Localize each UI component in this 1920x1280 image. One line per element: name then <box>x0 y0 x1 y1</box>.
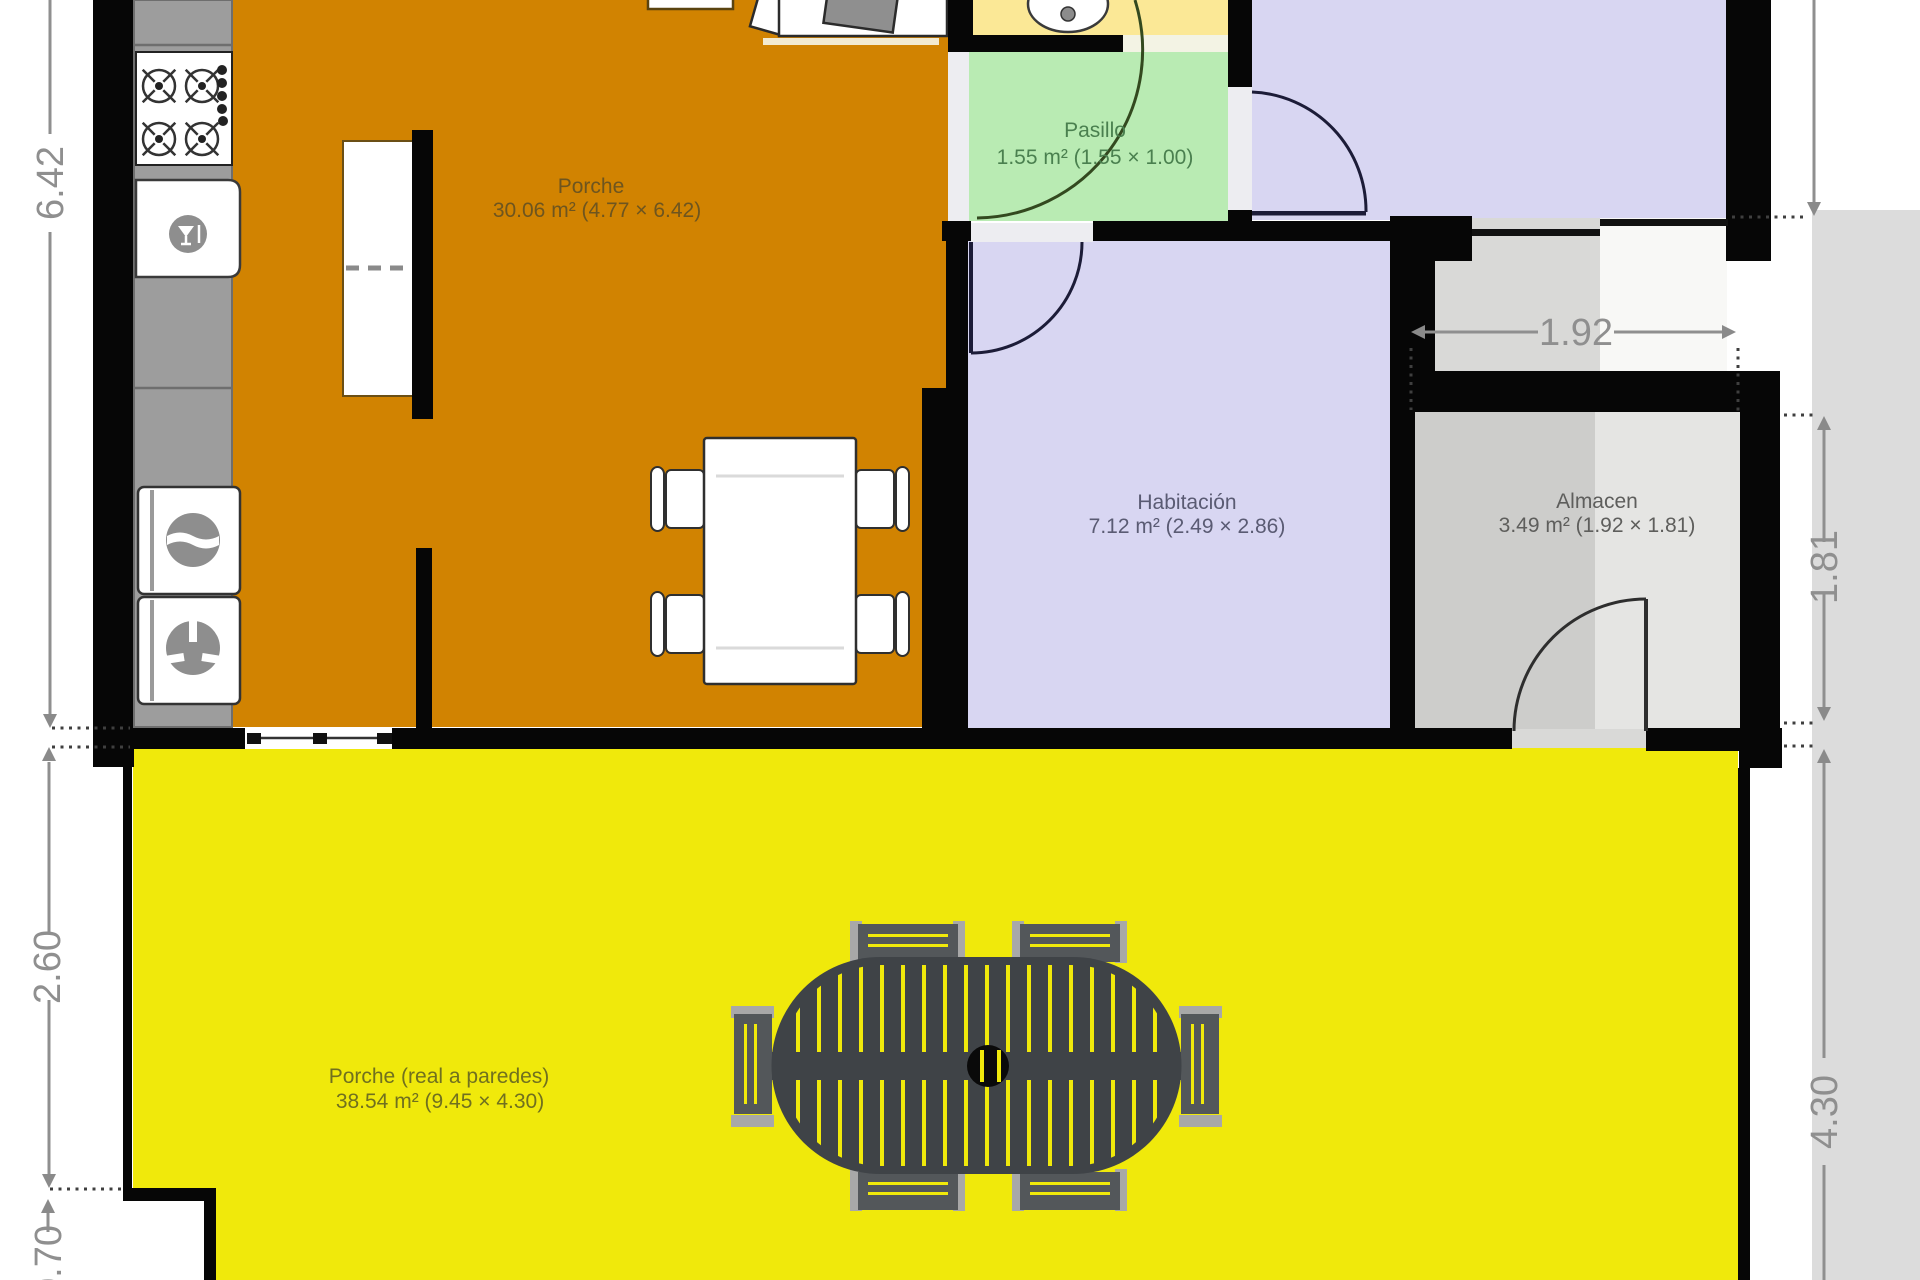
svg-text:2.60: 2.60 <box>27 930 69 1004</box>
svg-text:4.30: 4.30 <box>1804 1075 1846 1149</box>
svg-text:7.12 m² (2.49 × 2.86): 7.12 m² (2.49 × 2.86) <box>1089 515 1286 538</box>
svg-text:1.92: 1.92 <box>1539 312 1613 354</box>
svg-text:38.54 m² (9.45 × 4.30): 38.54 m² (9.45 × 4.30) <box>336 1090 544 1113</box>
svg-text:6.42: 6.42 <box>30 146 72 220</box>
svg-text:Porche (real a paredes): Porche (real a paredes) <box>329 1065 550 1088</box>
svg-text:Habitación: Habitación <box>1137 491 1236 514</box>
svg-text:30.06 m² (4.77 × 6.42): 30.06 m² (4.77 × 6.42) <box>493 199 701 222</box>
svg-text:0.70: 0.70 <box>28 1225 70 1280</box>
svg-text:Pasillo: Pasillo <box>1064 119 1126 142</box>
svg-text:3.49 m² (1.92 × 1.81): 3.49 m² (1.92 × 1.81) <box>1499 514 1696 537</box>
svg-text:Porche: Porche <box>558 175 625 198</box>
svg-text:1.55 m² (1.55 × 1.00): 1.55 m² (1.55 × 1.00) <box>997 146 1194 169</box>
svg-text:1.81: 1.81 <box>1804 530 1846 604</box>
svg-text:Almacen: Almacen <box>1556 490 1638 513</box>
